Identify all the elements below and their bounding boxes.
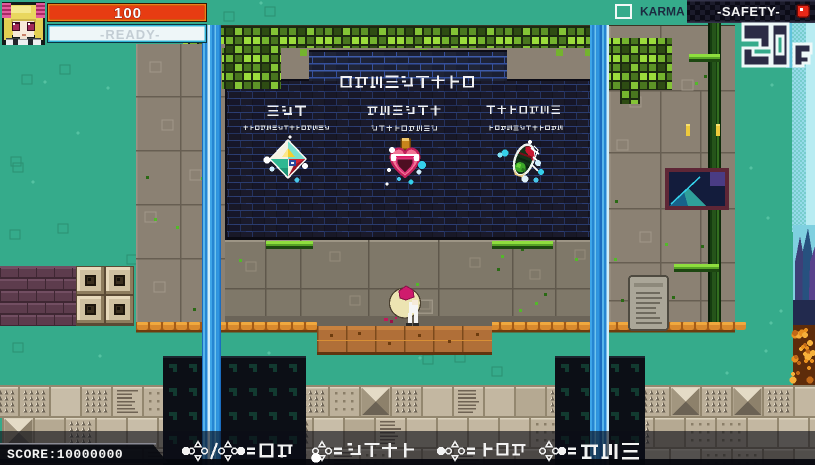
svg-text:100: 100 [114,5,142,22]
svg-text:-SAFETY-: -SAFETY- [717,4,780,19]
svg-text:-READY-: -READY- [100,27,160,42]
svg-text:SCORE:10000000: SCORE:10000000 [7,447,123,462]
svg-text:KARMA: KARMA [640,5,685,19]
